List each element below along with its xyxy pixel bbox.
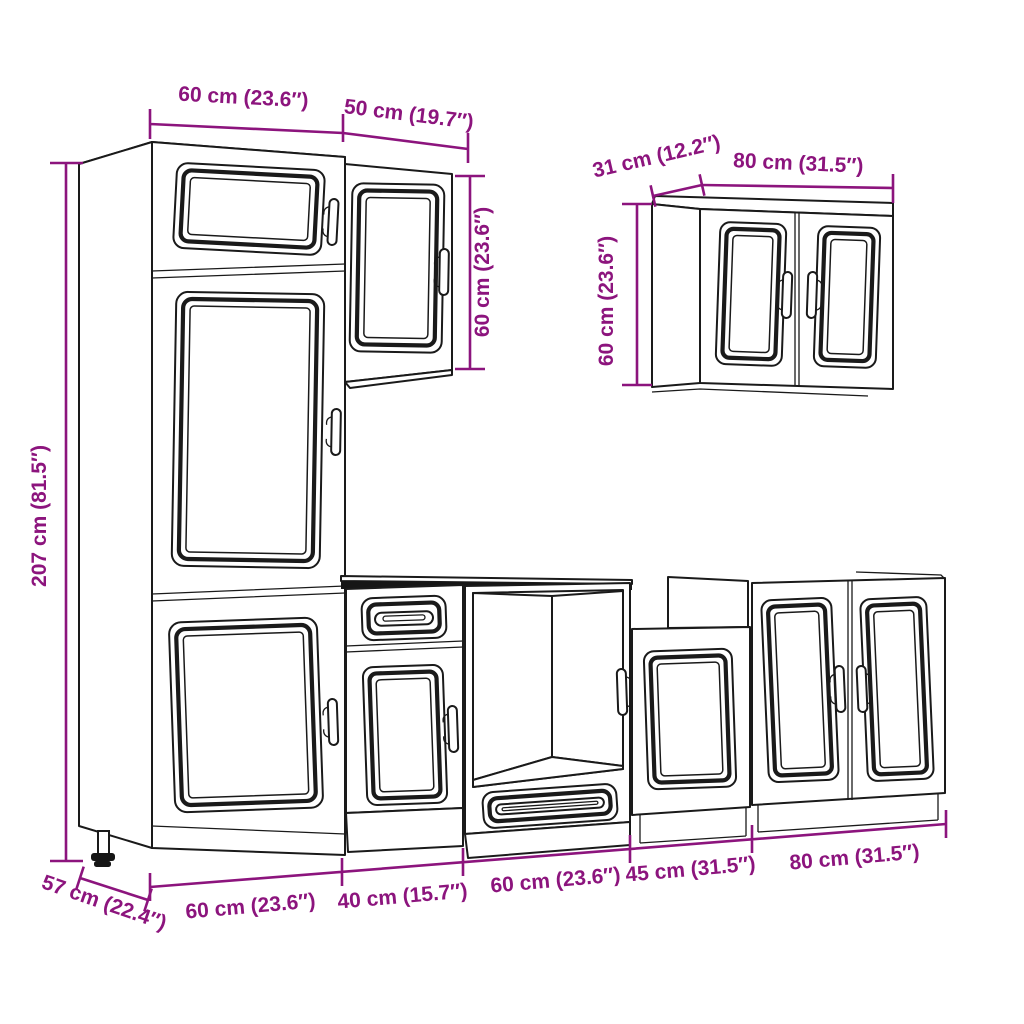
base-width-2-label: 40 cm (15.7″) xyxy=(337,879,469,913)
dimension-wall50-width: 50 cm (19.7″) xyxy=(343,95,475,163)
foot-disc xyxy=(91,853,115,861)
base-width-3-label: 60 cm (23.6″) xyxy=(490,863,622,897)
wall50-width-label: 50 cm (19.7″) xyxy=(343,95,475,134)
wall-cabinet-80-side-panel xyxy=(652,204,700,387)
wall-cabinet-80 xyxy=(652,196,893,396)
wall-cabinet-80-left-door xyxy=(716,222,787,366)
dimension-wall80-width: 80 cm (31.5″) xyxy=(702,149,893,203)
wall80-width-label: 80 cm (31.5″) xyxy=(733,149,864,178)
wall50-height-label: 60 cm (23.6″) xyxy=(471,207,494,337)
oven-housing-right-wall xyxy=(552,591,623,766)
tall-cabinet-middle-door xyxy=(172,292,325,569)
base-cabinet-80-left-door xyxy=(761,598,839,783)
oven-housing-cabinet-60 xyxy=(465,583,630,858)
base-cabinet-80-right-door xyxy=(860,597,934,782)
dimension-wall80-height: 60 cm (23.6″) xyxy=(595,204,652,385)
tall-width-label: 60 cm (23.6″) xyxy=(178,83,309,113)
base-cabinet-45-door xyxy=(644,649,737,790)
dimension-tall-width: 60 cm (23.6″) xyxy=(150,83,343,142)
tall-cabinet-side-panel xyxy=(79,142,152,848)
base-width-5-label: 80 cm (31.5″) xyxy=(789,840,921,874)
tall-cabinet xyxy=(79,142,345,867)
base-width-4-label: 45 cm (31.5″) xyxy=(625,852,757,886)
base-cabinet-40-door xyxy=(363,665,448,806)
foot-base xyxy=(94,861,111,867)
dimension-wall50-height: 60 cm (23.6″) xyxy=(455,176,494,369)
base-width-1-label: 60 cm (23.6″) xyxy=(185,889,317,923)
dimension-tall-height: 207 cm (81.5″) xyxy=(28,163,83,861)
tall-cabinet-bottom-door xyxy=(169,617,324,812)
wall-cabinet-80-bottom-sliver xyxy=(652,389,868,396)
kitchen-cabinet-dimension-diagram: 60 cm (23.6″) 50 cm (19.7″) 60 cm (23.6″… xyxy=(0,0,1024,1024)
wall80-height-label: 60 cm (23.6″) xyxy=(595,236,618,366)
wall-cabinet-80-right-door xyxy=(814,226,881,368)
base-cabinet-40 xyxy=(346,585,463,852)
base-cabinet-45 xyxy=(617,577,750,843)
foot-shaft xyxy=(98,831,109,855)
oven-housing-back-wall xyxy=(473,593,552,780)
base-cabinet-45-back-panel xyxy=(668,577,748,628)
base-cabinet-80 xyxy=(752,572,945,832)
tall-height-label: 207 cm (81.5″) xyxy=(28,445,51,587)
wall80-depth-label: 31 cm (12.2″) xyxy=(590,131,722,183)
diagram-canvas: 60 cm (23.6″) 50 cm (19.7″) 60 cm (23.6″… xyxy=(0,0,1024,1024)
tall-cabinet-top-door xyxy=(173,163,325,256)
base-cabinet-40-plinth xyxy=(346,808,463,852)
wall-cabinet-50 xyxy=(345,164,452,388)
dimension-wall80-depth: 31 cm (12.2″) xyxy=(590,131,722,207)
wall-cabinet-50-door xyxy=(350,183,445,353)
base-cabinet-40-drawer xyxy=(361,596,446,641)
